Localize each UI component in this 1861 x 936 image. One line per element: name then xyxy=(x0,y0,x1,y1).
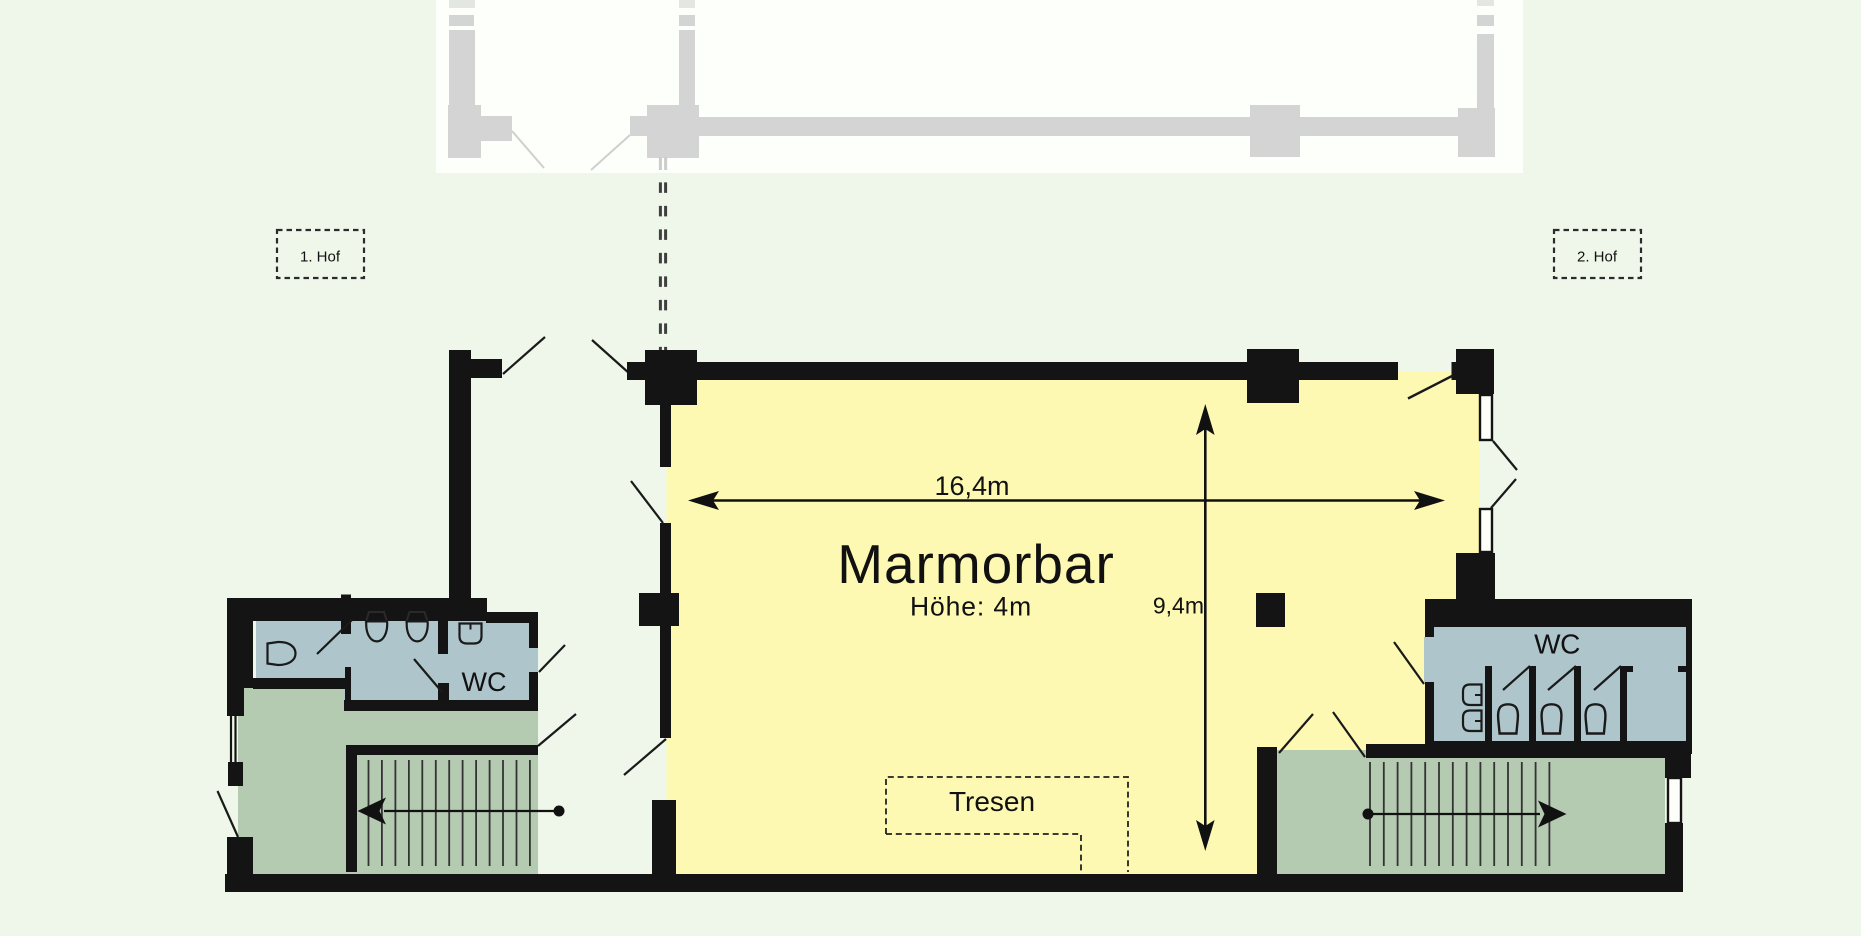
svg-text:9,4m: 9,4m xyxy=(1153,593,1204,619)
svg-text:Marmorbar: Marmorbar xyxy=(837,533,1114,595)
svg-text:16,4m: 16,4m xyxy=(934,471,1009,501)
svg-text:Höhe: 4m: Höhe: 4m xyxy=(910,592,1032,622)
svg-text:WC: WC xyxy=(1534,629,1580,660)
svg-text:2. Hof: 2. Hof xyxy=(1577,249,1618,266)
svg-text:WC: WC xyxy=(462,667,507,697)
svg-text:1. Hof: 1. Hof xyxy=(300,249,341,266)
svg-text:Tresen: Tresen xyxy=(949,786,1035,817)
